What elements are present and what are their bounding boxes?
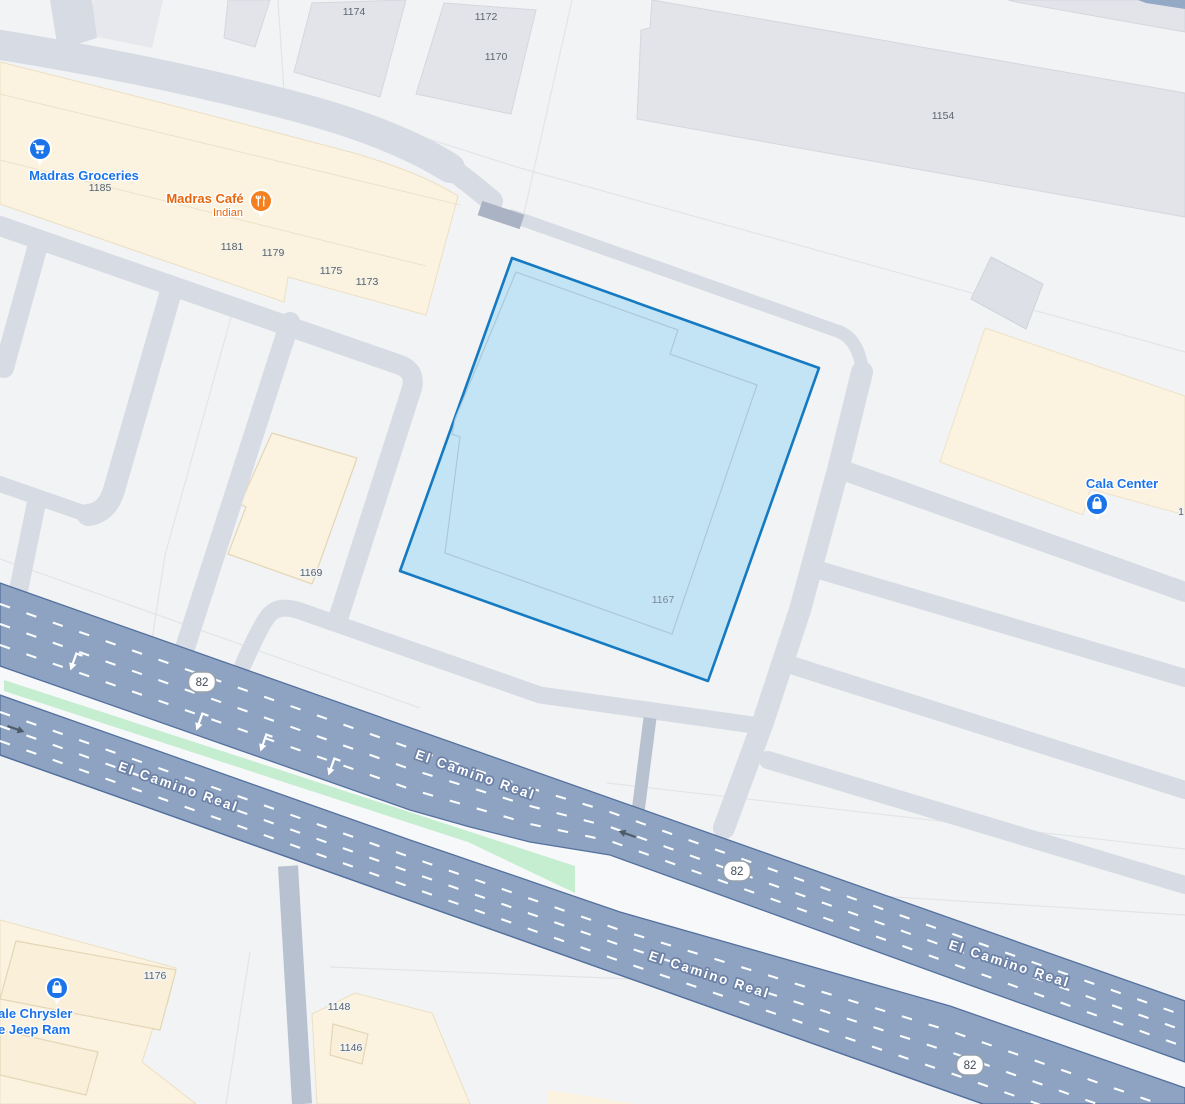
svg-text:1181: 1181 [221,241,244,253]
svg-text:1172: 1172 [475,11,498,23]
svg-text:1154: 1154 [932,110,955,122]
svg-text:Cala Center: Cala Center [1086,476,1158,491]
svg-text:1: 1 [1178,506,1184,518]
svg-text:1174: 1174 [343,6,366,18]
svg-text:1146: 1146 [340,1042,363,1054]
svg-text:Madras Groceries: Madras Groceries [29,168,139,183]
svg-text:1176: 1176 [144,970,167,982]
svg-text:82: 82 [964,1060,977,1072]
svg-text:1169: 1169 [300,567,323,579]
svg-text:82: 82 [731,866,744,878]
svg-text:1185: 1185 [89,182,112,194]
svg-text:1179: 1179 [262,247,285,259]
svg-text:e Jeep Ram: e Jeep Ram [0,1022,70,1037]
svg-text:ale Chrysler: ale Chrysler [0,1006,72,1021]
svg-text:1175: 1175 [320,265,343,277]
svg-text:Indian: Indian [213,207,243,219]
svg-text:82: 82 [196,677,209,689]
svg-text:1170: 1170 [485,51,508,63]
svg-text:1173: 1173 [356,276,379,288]
svg-text:1148: 1148 [328,1001,351,1013]
svg-text:Madras Café: Madras Café [166,191,243,206]
svg-text:1167: 1167 [652,594,675,606]
